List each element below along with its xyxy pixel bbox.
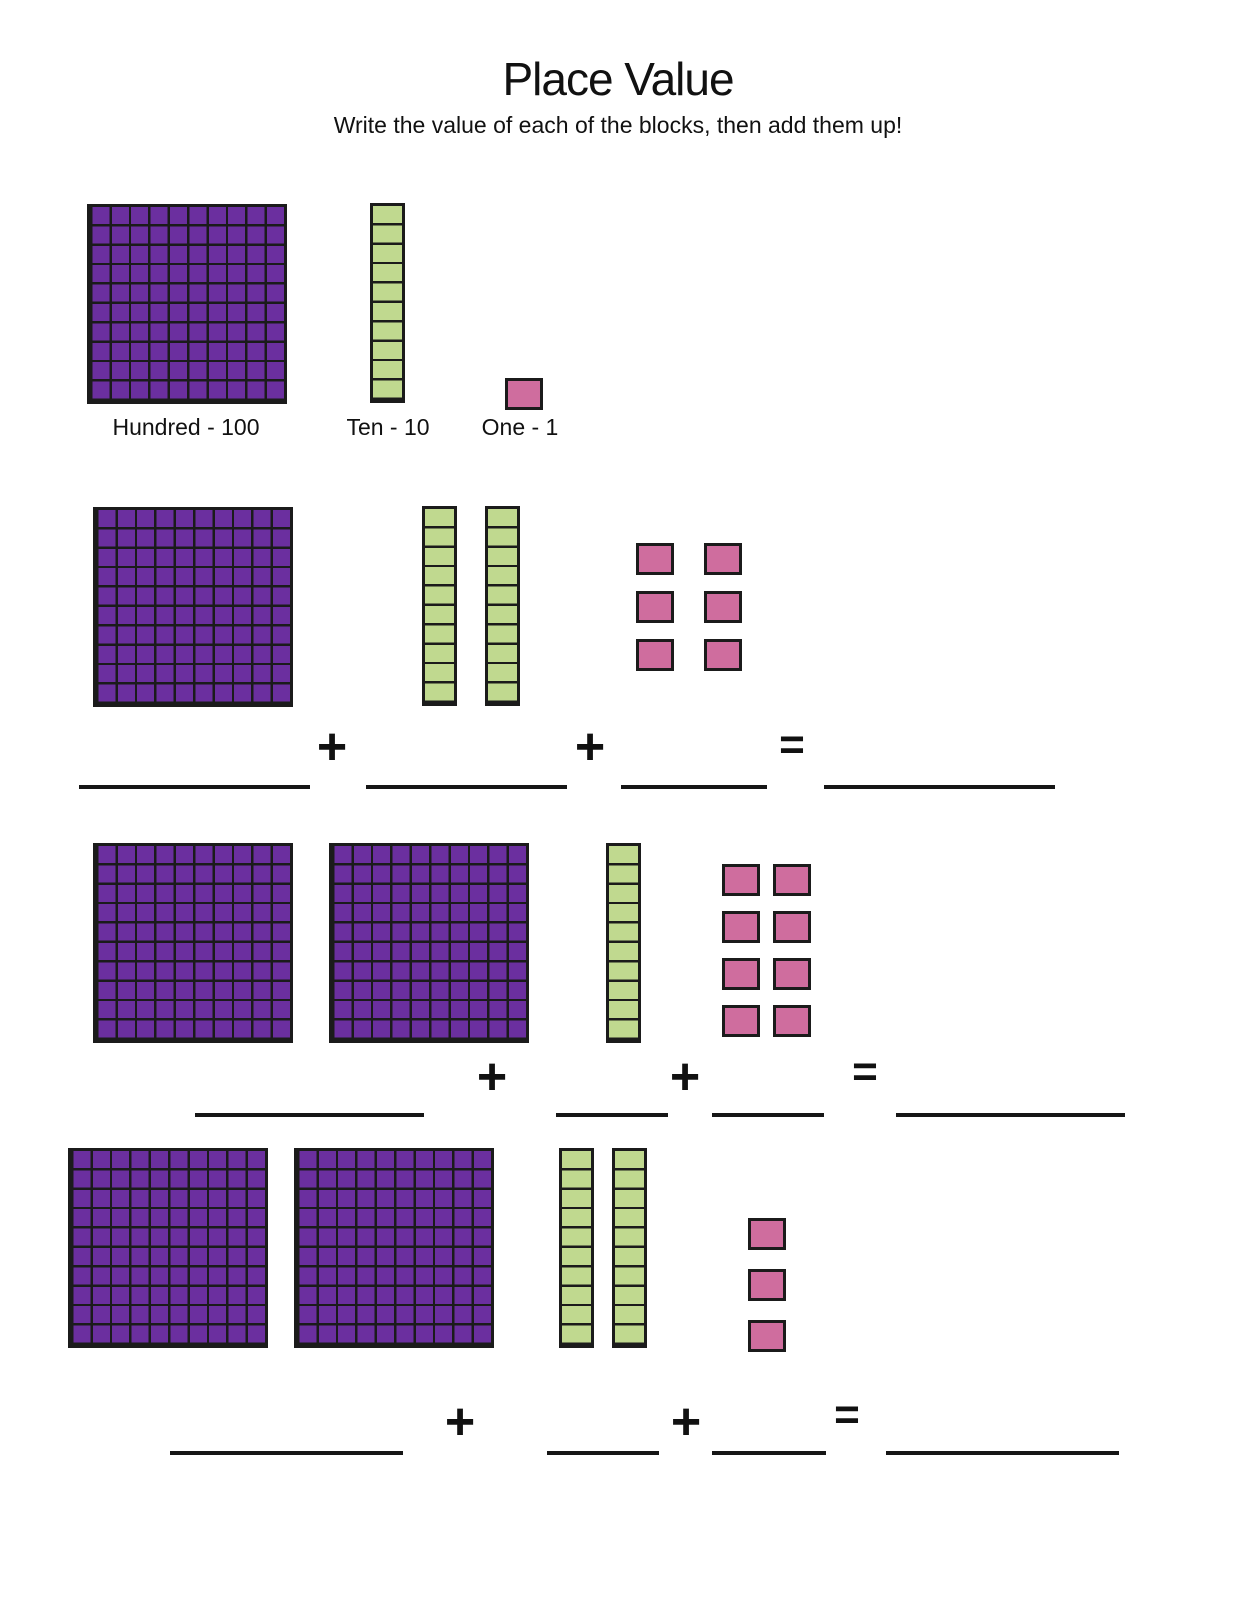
hundred-block xyxy=(329,843,529,1043)
ten-block xyxy=(422,506,457,706)
one-block xyxy=(773,864,811,896)
one-block xyxy=(748,1320,786,1352)
ten-block xyxy=(612,1148,647,1348)
hundred-key-label: Hundred - 100 xyxy=(87,414,285,441)
problem-2-answer-blank-ones[interactable] xyxy=(712,1113,824,1117)
ten-block xyxy=(370,203,405,403)
one-block xyxy=(773,911,811,943)
problem-1-answer-blank-tens[interactable] xyxy=(366,785,567,789)
plus-operator: + xyxy=(440,1396,480,1448)
plus-operator: + xyxy=(312,721,352,773)
plus-operator: + xyxy=(665,1051,705,1103)
one-block xyxy=(704,543,742,575)
problem-2-tens-group xyxy=(606,843,641,1043)
equals-operator: = xyxy=(845,1050,885,1094)
one-block xyxy=(722,1005,760,1037)
hundred-block xyxy=(87,204,287,404)
one-block xyxy=(722,911,760,943)
ten-key-label: Ten - 10 xyxy=(332,414,444,441)
one-block xyxy=(773,958,811,990)
hundred-block xyxy=(93,843,293,1043)
problem-2-hundreds-group xyxy=(93,843,529,1043)
ten-block xyxy=(559,1148,594,1348)
problem-1-ones-group xyxy=(636,543,742,671)
problem-2-answer-blank-total[interactable] xyxy=(896,1113,1125,1117)
one-block xyxy=(773,1005,811,1037)
one-key-label: One - 1 xyxy=(464,414,576,441)
hundred-block xyxy=(93,507,293,707)
place-value-worksheet: Place Value Write the value of each of t… xyxy=(0,0,1236,1600)
one-block xyxy=(704,591,742,623)
one-block xyxy=(636,639,674,671)
problem-3-answer-blank-ones[interactable] xyxy=(712,1451,826,1455)
equals-operator: = xyxy=(772,723,812,767)
problem-3-answer-blank-total[interactable] xyxy=(886,1451,1119,1455)
one-block xyxy=(505,378,543,410)
problem-2-ones-group xyxy=(722,864,811,1037)
problem-1-tens-group xyxy=(422,506,520,706)
page-title: Place Value xyxy=(0,52,1236,106)
ten-block xyxy=(606,843,641,1043)
equals-operator: = xyxy=(827,1393,867,1437)
problem-2-answer-blank-hundreds[interactable] xyxy=(195,1113,424,1117)
hundred-block xyxy=(68,1148,268,1348)
page-subtitle: Write the value of each of the blocks, t… xyxy=(0,112,1236,139)
one-block xyxy=(722,864,760,896)
problem-1-answer-blank-total[interactable] xyxy=(824,785,1055,789)
plus-operator: + xyxy=(666,1396,706,1448)
ten-block xyxy=(485,506,520,706)
hundred-block xyxy=(294,1148,494,1348)
problem-3-ones-group xyxy=(748,1218,786,1352)
problem-3-answer-blank-hundreds[interactable] xyxy=(170,1451,403,1455)
plus-operator: + xyxy=(570,721,610,773)
plus-operator: + xyxy=(472,1051,512,1103)
problem-3-hundreds-group xyxy=(68,1148,494,1348)
problem-3-tens-group xyxy=(559,1148,647,1348)
one-block xyxy=(636,543,674,575)
problem-1-hundreds-group xyxy=(93,507,293,707)
problem-2-answer-blank-tens[interactable] xyxy=(556,1113,668,1117)
one-block xyxy=(748,1269,786,1301)
one-block xyxy=(748,1218,786,1250)
problem-1-answer-blank-hundreds[interactable] xyxy=(79,785,310,789)
one-block xyxy=(722,958,760,990)
problem-3-answer-blank-tens[interactable] xyxy=(547,1451,659,1455)
problem-1-answer-blank-ones[interactable] xyxy=(621,785,767,789)
header: Place Value Write the value of each of t… xyxy=(0,52,1236,139)
one-block xyxy=(704,639,742,671)
one-block xyxy=(636,591,674,623)
